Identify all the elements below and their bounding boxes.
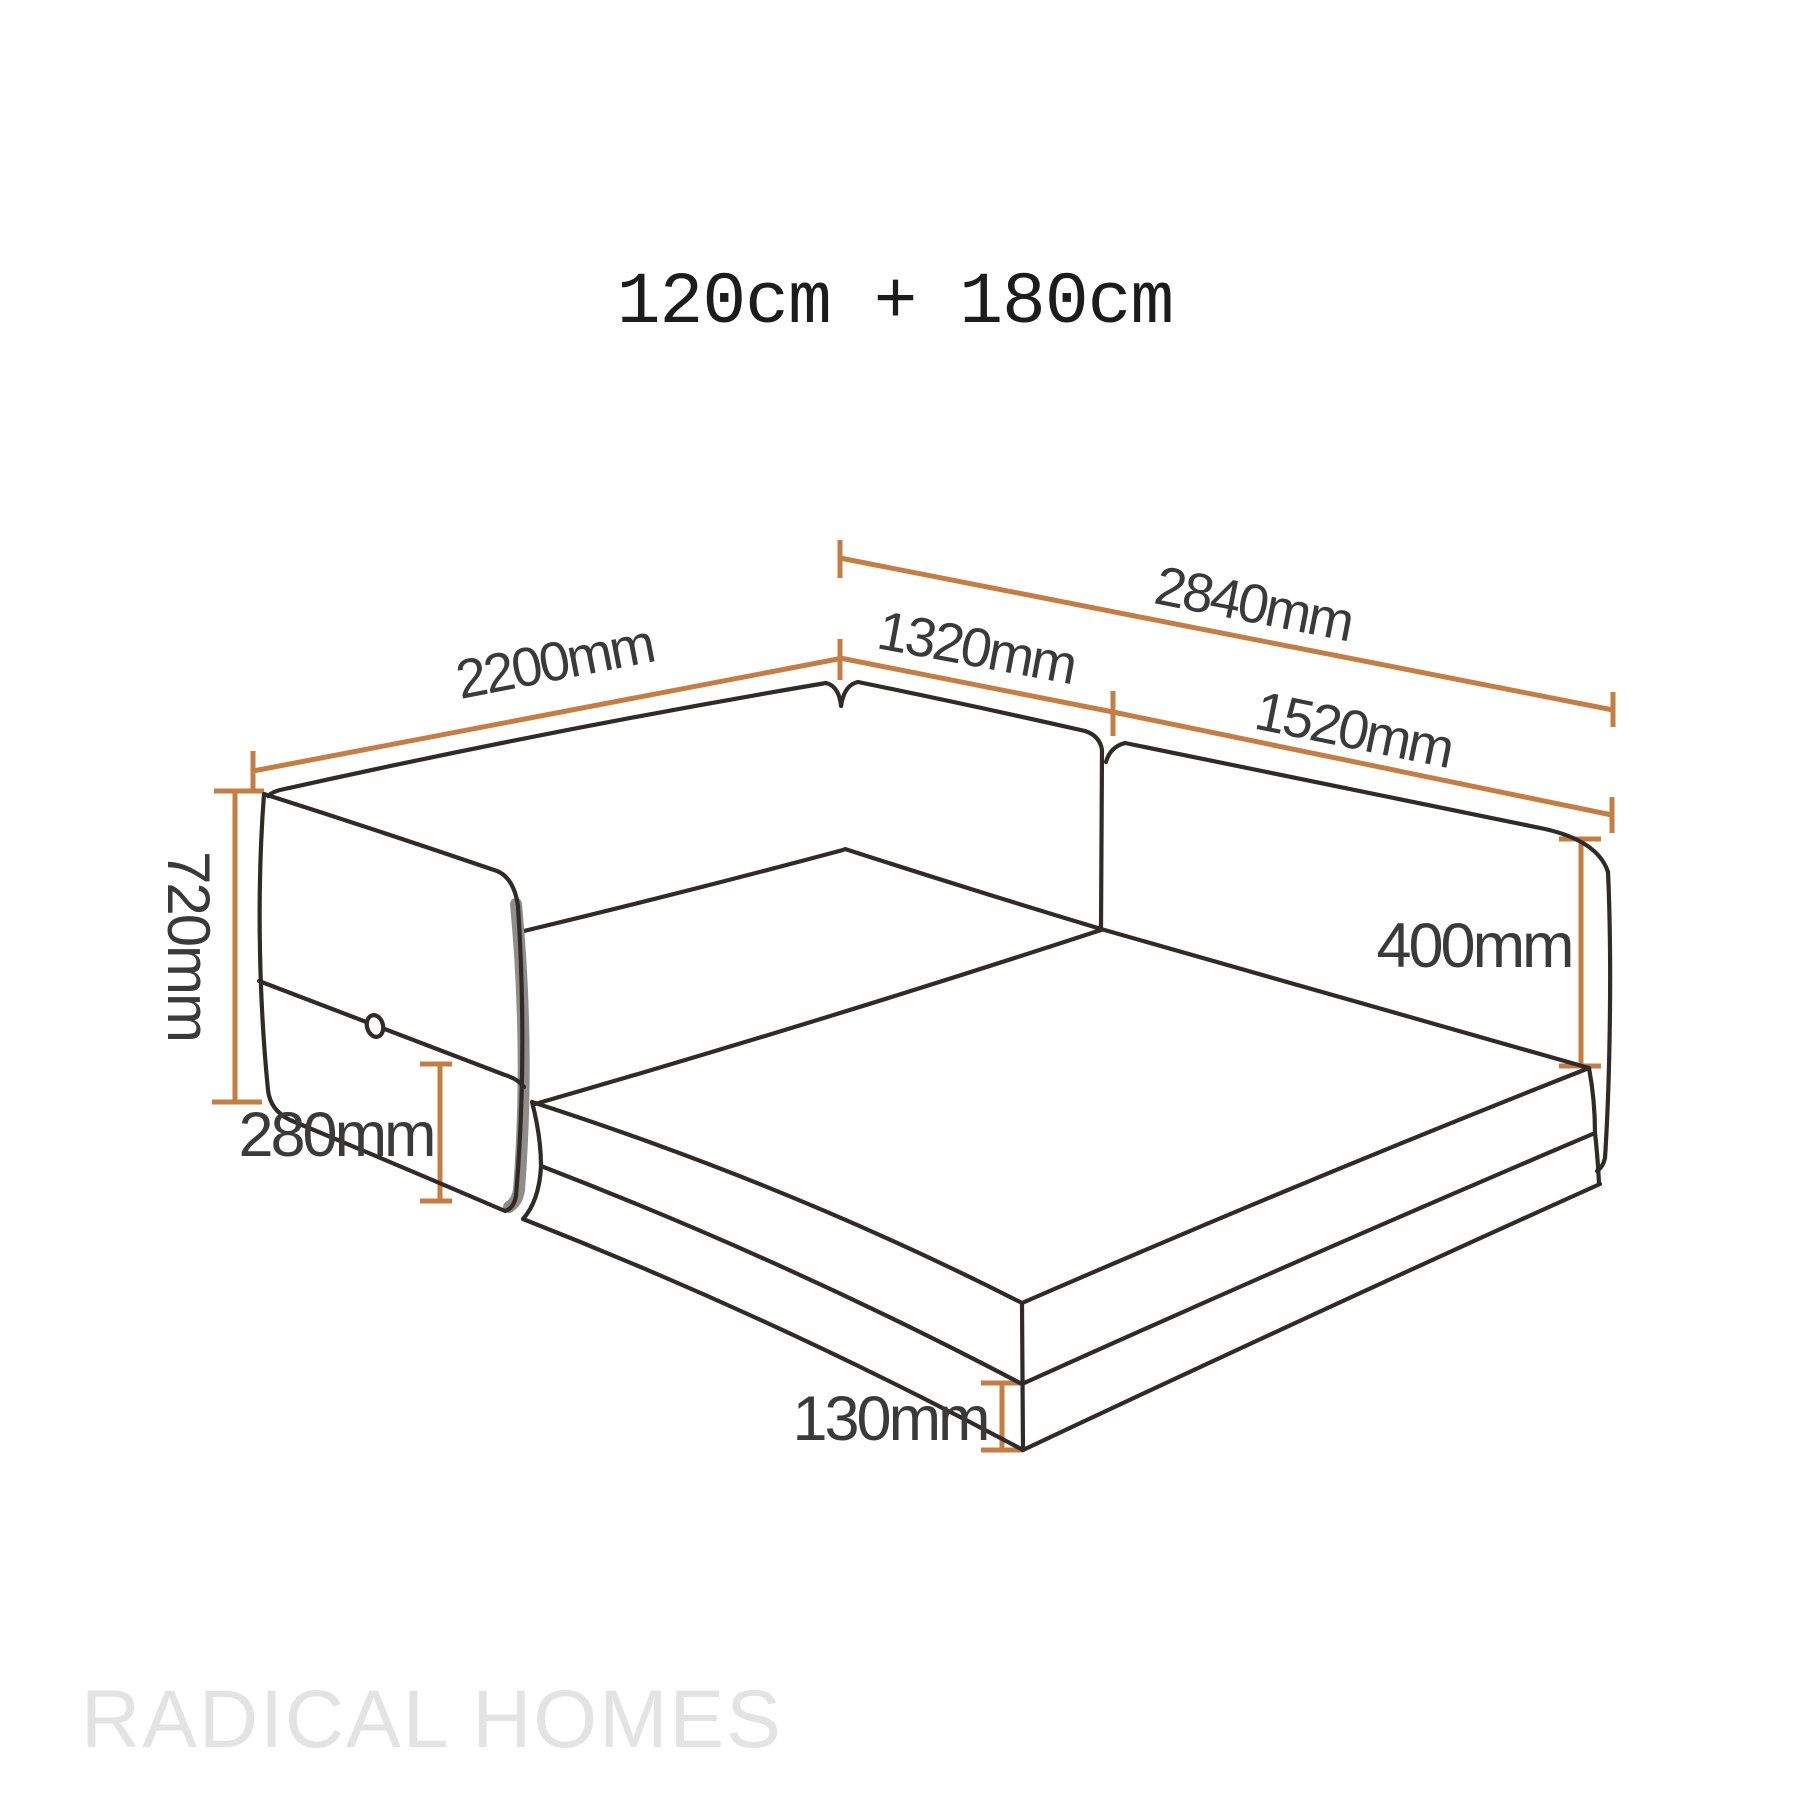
svg-text:400mm: 400mm — [1376, 911, 1571, 981]
svg-text:720mm: 720mm — [155, 851, 222, 1041]
svg-text:RADICAL HOMES: RADICAL HOMES — [81, 1674, 783, 1765]
svg-text:130mm: 130mm — [792, 1384, 987, 1454]
svg-text:1320mm: 1320mm — [873, 599, 1080, 696]
svg-text:2200mm: 2200mm — [451, 612, 658, 711]
svg-text:280mm: 280mm — [238, 1100, 433, 1170]
svg-text:120cm + 180cm: 120cm + 180cm — [617, 261, 1174, 344]
svg-text:1520mm: 1520mm — [1250, 679, 1457, 779]
